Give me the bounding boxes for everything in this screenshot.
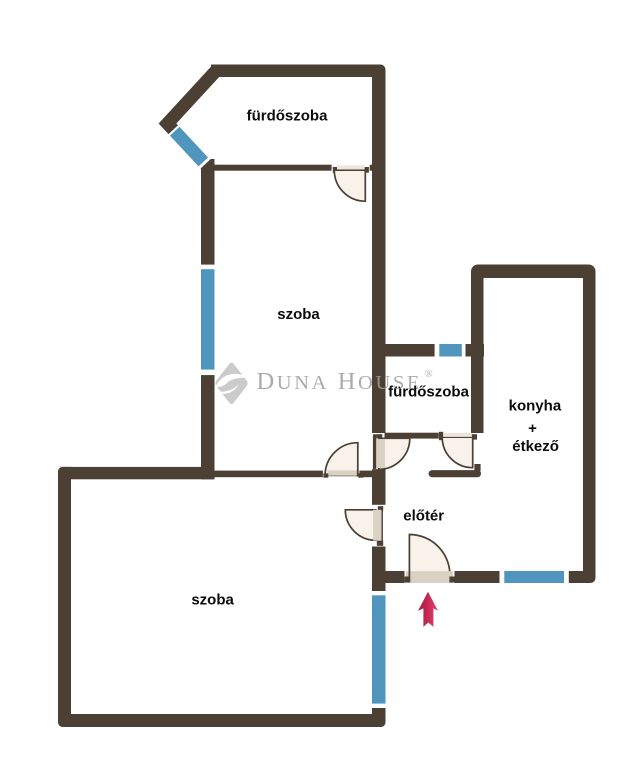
svg-text:+: +: [528, 420, 537, 437]
svg-text:konyha: konyha: [509, 397, 562, 414]
svg-text:®: ®: [425, 369, 433, 380]
svg-text:fürdőszoba: fürdőszoba: [247, 107, 328, 124]
svg-text:szoba: szoba: [277, 306, 320, 323]
svg-text:étkező: étkező: [512, 438, 559, 455]
svg-text:szoba: szoba: [191, 591, 234, 608]
svg-text:fürdőszoba: fürdőszoba: [388, 383, 469, 400]
svg-text:előtér: előtér: [403, 507, 444, 524]
